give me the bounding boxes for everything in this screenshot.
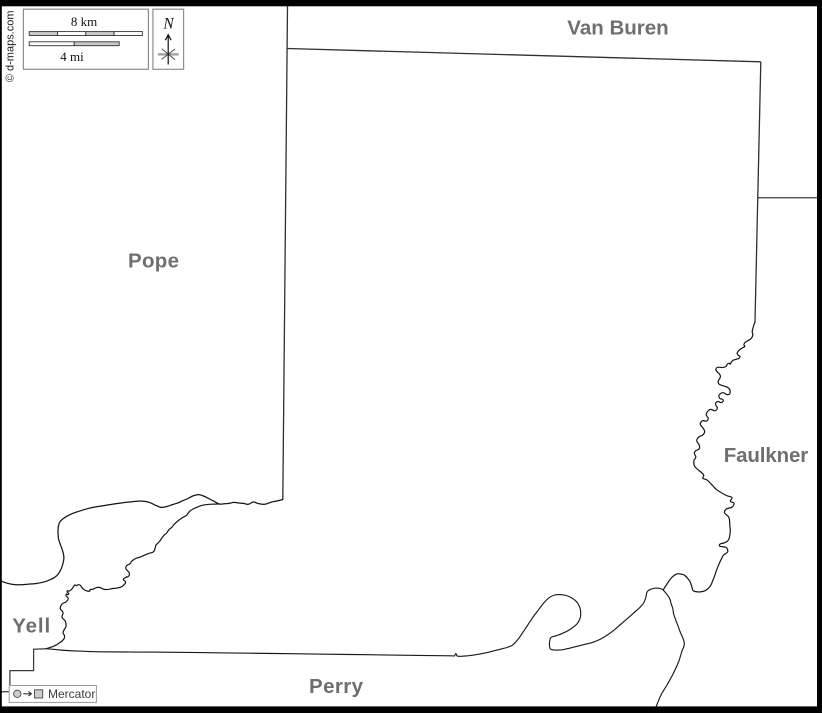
svg-text:N: N (162, 16, 175, 33)
svg-text:4 mi: 4 mi (60, 49, 84, 64)
svg-text:Perry: Perry (309, 675, 364, 698)
svg-text:Van Buren: Van Buren (567, 17, 668, 40)
svg-text:Faulkner: Faulkner (724, 444, 808, 467)
svg-text:Yell: Yell (12, 615, 51, 638)
svg-text:Pope: Pope (128, 250, 179, 273)
svg-text:Mercator: Mercator (48, 687, 95, 701)
svg-text:8 km: 8 km (71, 14, 97, 29)
svg-text:© d-maps.com: © d-maps.com (4, 10, 16, 82)
